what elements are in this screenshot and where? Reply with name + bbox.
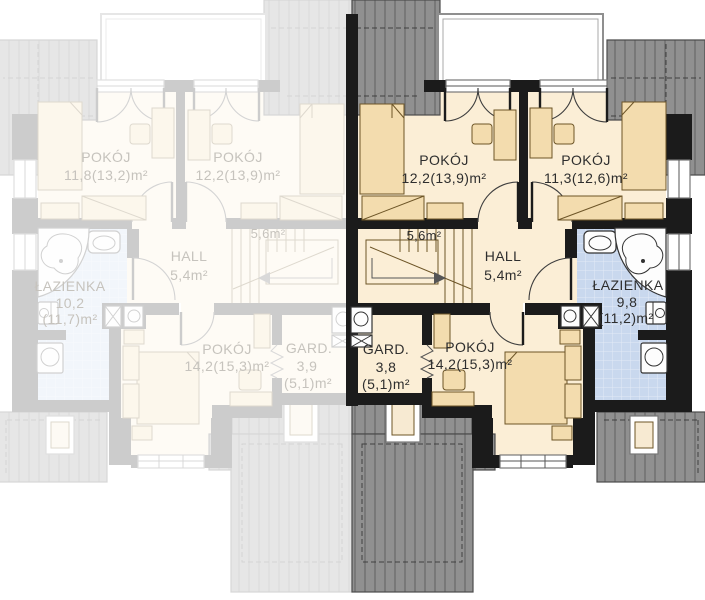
room-area: 10,2 <box>56 295 85 311</box>
room-area: 14,2(15,3)m² <box>428 356 513 372</box>
room-label: POKÓJ <box>419 152 468 168</box>
room-label: ŁAZIENKA <box>35 278 106 294</box>
room-area: 11,3(12,6)m² <box>544 170 628 186</box>
room-area-total: (11,7)m² <box>42 311 97 327</box>
stairs-area: 5,6m² <box>407 228 442 243</box>
room-label: POKÓJ <box>81 149 130 165</box>
room-area: 12,2(13,9)m² <box>402 170 487 186</box>
room-area-total: (11,2)m² <box>598 310 653 326</box>
room-label: GARD. <box>286 340 332 356</box>
room-label: POKÓJ <box>561 152 610 168</box>
room-label: POKÓJ <box>202 341 251 357</box>
floor-plan-drawing: POKÓJ 11,8(13,2)m² POKÓJ 12,2(13,9)m² 5,… <box>0 0 705 600</box>
room-area: 11,8(13,2)m² <box>64 167 148 183</box>
room-area: 14,2(15,3)m² <box>185 358 270 374</box>
room-area: 5,4m² <box>484 267 522 283</box>
room-label: GARD. <box>363 341 409 357</box>
room-label: POKÓJ <box>213 149 262 165</box>
room-area-total: (5,1)m² <box>362 376 410 392</box>
room-label: ŁAZIENKA <box>593 277 664 293</box>
room-label: HALL <box>485 248 522 264</box>
room-label: POKÓJ <box>445 339 494 355</box>
stairs-area: 5,6m² <box>251 226 286 241</box>
room-area: 3,8 <box>376 359 397 375</box>
room-label: HALL <box>171 248 208 264</box>
room-area-total: (5,1)m² <box>284 375 332 391</box>
floor-plan-page: POKÓJ 11,8(13,2)m² POKÓJ 12,2(13,9)m² 5,… <box>0 0 705 600</box>
room-area: 9,8 <box>617 294 638 310</box>
room-area: 5,4m² <box>170 267 208 283</box>
room-area: 3,9 <box>297 358 318 374</box>
room-area: 12,2(13,9)m² <box>196 167 281 183</box>
